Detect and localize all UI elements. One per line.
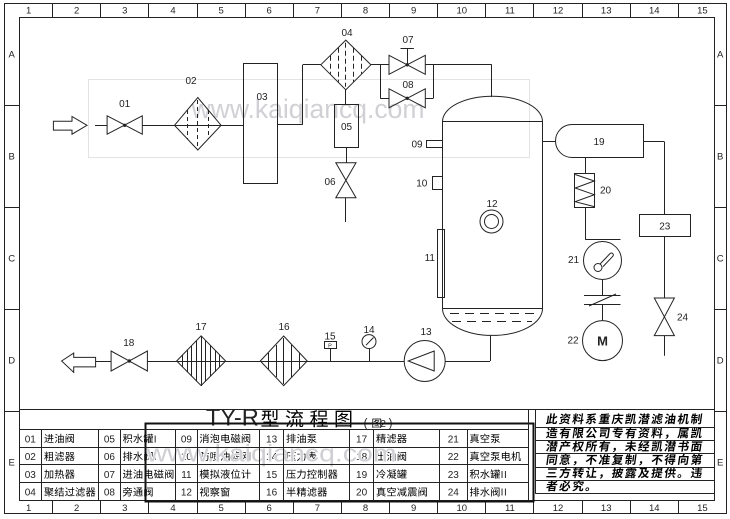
- svg-text:08: 08: [402, 80, 414, 91]
- svg-text:15: 15: [697, 503, 708, 514]
- svg-text:13: 13: [601, 503, 612, 514]
- svg-text:06: 06: [324, 177, 336, 188]
- svg-text:6: 6: [267, 503, 272, 514]
- svg-text:19: 19: [593, 137, 605, 148]
- svg-text:5: 5: [218, 6, 223, 17]
- svg-text:08: 08: [104, 488, 116, 499]
- svg-text:2: 2: [74, 503, 79, 514]
- svg-text:06: 06: [104, 452, 116, 463]
- svg-text:14: 14: [649, 503, 660, 514]
- svg-text:6: 6: [267, 6, 272, 17]
- svg-text:10: 10: [457, 6, 468, 17]
- svg-text:11: 11: [505, 503, 515, 514]
- svg-text:10: 10: [416, 179, 428, 190]
- svg-text:4: 4: [170, 6, 175, 17]
- svg-text:7: 7: [315, 503, 320, 514]
- svg-text:04: 04: [341, 28, 353, 39]
- svg-text:03: 03: [256, 92, 268, 103]
- svg-text:A: A: [9, 50, 16, 61]
- svg-text:15: 15: [697, 6, 708, 17]
- svg-text:16: 16: [278, 322, 290, 333]
- svg-text:02: 02: [185, 76, 197, 87]
- svg-text:15: 15: [266, 470, 278, 481]
- svg-text:18: 18: [123, 338, 135, 349]
- svg-text:11: 11: [425, 253, 436, 264]
- svg-text:15: 15: [324, 332, 336, 343]
- svg-text:22: 22: [448, 452, 460, 463]
- svg-text:D: D: [8, 356, 15, 367]
- svg-text:07: 07: [402, 35, 414, 46]
- svg-text:22: 22: [567, 336, 579, 347]
- svg-text:20: 20: [356, 488, 368, 499]
- svg-text:C: C: [8, 254, 15, 265]
- svg-text:19: 19: [356, 470, 368, 481]
- svg-text:D: D: [717, 356, 724, 367]
- svg-text:1: 1: [26, 503, 31, 514]
- svg-text:05: 05: [341, 122, 353, 133]
- svg-text:12: 12: [553, 503, 564, 514]
- svg-text:05: 05: [104, 434, 116, 445]
- svg-text:21: 21: [568, 255, 580, 266]
- svg-text:12: 12: [181, 488, 193, 499]
- svg-text:7: 7: [315, 6, 320, 17]
- svg-text:5: 5: [218, 503, 223, 514]
- svg-text:20: 20: [600, 186, 612, 197]
- svg-text:16: 16: [266, 488, 278, 499]
- svg-text:24: 24: [448, 488, 460, 499]
- svg-text:8: 8: [363, 6, 368, 17]
- svg-text:11: 11: [181, 470, 192, 481]
- svg-text:B: B: [717, 152, 723, 163]
- svg-text:01: 01: [25, 434, 37, 445]
- svg-text:9: 9: [411, 503, 416, 514]
- svg-text:23: 23: [659, 222, 671, 233]
- svg-text:13: 13: [420, 327, 432, 338]
- svg-text:I: I: [504, 470, 507, 481]
- svg-text:8: 8: [363, 503, 368, 514]
- svg-text:E: E: [9, 458, 15, 469]
- svg-text:C: C: [717, 254, 724, 265]
- svg-text:M: M: [597, 334, 608, 349]
- svg-text:11: 11: [505, 6, 515, 17]
- svg-text:9: 9: [411, 6, 416, 17]
- svg-text:1: 1: [26, 6, 31, 17]
- svg-text:13: 13: [601, 6, 612, 17]
- svg-text:07: 07: [104, 470, 116, 481]
- svg-text:14: 14: [363, 325, 375, 336]
- svg-text:I: I: [504, 488, 507, 499]
- svg-text:12: 12: [553, 6, 564, 17]
- svg-text:14: 14: [649, 6, 660, 17]
- svg-text:02: 02: [25, 452, 37, 463]
- svg-text:B: B: [9, 152, 15, 163]
- svg-text:17: 17: [195, 322, 207, 333]
- svg-text:12: 12: [486, 199, 498, 210]
- svg-text:03: 03: [25, 470, 37, 481]
- svg-text:10: 10: [457, 503, 468, 514]
- svg-text:E: E: [717, 458, 723, 469]
- svg-text:3: 3: [122, 503, 127, 514]
- svg-text:2: 2: [74, 6, 79, 17]
- svg-text:TY-R: TY-R: [206, 405, 259, 432]
- svg-text:09: 09: [411, 140, 423, 151]
- svg-text:4: 4: [170, 503, 175, 514]
- svg-text:23: 23: [448, 470, 460, 481]
- svg-text:24: 24: [677, 313, 689, 324]
- svg-text:A: A: [717, 50, 724, 61]
- svg-text:P: P: [328, 344, 332, 350]
- svg-text:21: 21: [448, 434, 460, 445]
- svg-text:3: 3: [122, 6, 127, 17]
- svg-text:04: 04: [25, 488, 37, 499]
- svg-text:01: 01: [119, 99, 131, 110]
- svg-text:www.kaiqiancq.com: www.kaiqiancq.com: [145, 441, 396, 468]
